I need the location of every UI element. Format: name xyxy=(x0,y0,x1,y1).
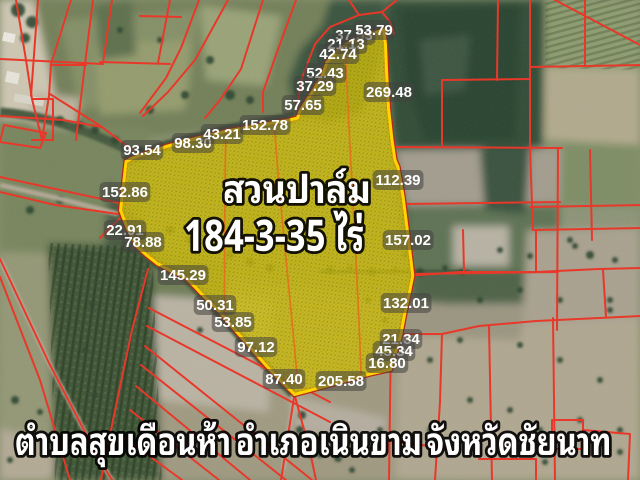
svg-text:97.12: 97.12 xyxy=(237,339,275,356)
svg-text:112.39: 112.39 xyxy=(375,172,420,189)
svg-text:93.54: 93.54 xyxy=(123,142,161,159)
svg-text:57.65: 57.65 xyxy=(284,97,322,114)
svg-text:132.01: 132.01 xyxy=(383,295,429,312)
svg-text:43.21: 43.21 xyxy=(203,126,241,143)
svg-text:37.29: 37.29 xyxy=(296,78,334,95)
svg-text:145.29: 145.29 xyxy=(160,267,206,284)
svg-text:42.74: 42.74 xyxy=(319,46,357,63)
svg-text:78.88: 78.88 xyxy=(124,234,162,251)
svg-text:152.86: 152.86 xyxy=(102,184,148,201)
svg-text:16.80: 16.80 xyxy=(368,355,406,372)
svg-text:157.02: 157.02 xyxy=(385,232,431,249)
svg-text:87.40: 87.40 xyxy=(265,371,303,388)
svg-text:205.58: 205.58 xyxy=(318,373,364,390)
svg-text:152.78: 152.78 xyxy=(242,117,288,134)
svg-text:53.85: 53.85 xyxy=(214,314,252,331)
svg-text:50.31: 50.31 xyxy=(196,297,234,314)
svg-text:269.48: 269.48 xyxy=(366,84,412,101)
